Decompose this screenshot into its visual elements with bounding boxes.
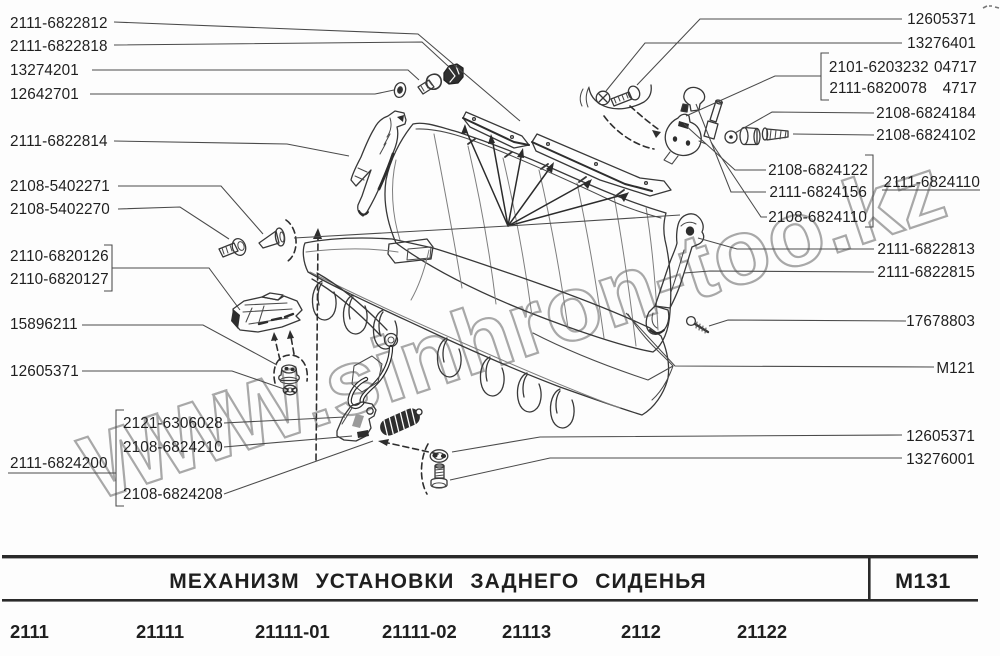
- svg-text:2111-6822818: 2111-6822818: [10, 38, 108, 55]
- svg-text:15896211: 15896211: [10, 316, 78, 333]
- svg-text:2111-6822812: 2111-6822812: [10, 15, 108, 32]
- svg-text:21113: 21113: [502, 621, 551, 642]
- svg-text:2108-6824110: 2108-6824110: [768, 209, 867, 226]
- svg-text:2110-6820127: 2110-6820127: [10, 271, 109, 288]
- svg-text:2108-6824184: 2108-6824184: [876, 105, 976, 122]
- svg-text:2111-6824200: 2111-6824200: [10, 455, 108, 472]
- svg-text:12642701: 12642701: [10, 86, 79, 103]
- svg-text:21111-01: 21111-01: [255, 621, 330, 642]
- svg-text:2121-6306028: 2121-6306028: [123, 415, 223, 432]
- svg-text:2111-6820078 4717: 2111-6820078 4717: [829, 80, 977, 97]
- svg-text:17678803: 17678803: [906, 313, 975, 330]
- svg-text:2111-6822815: 2111-6822815: [877, 264, 975, 281]
- svg-text:2112: 2112: [621, 621, 661, 642]
- svg-text:2108-5402270: 2108-5402270: [10, 201, 110, 218]
- svg-text:13276401: 13276401: [907, 35, 976, 52]
- svg-text:21111-02: 21111-02: [382, 621, 457, 642]
- svg-text:2111-6822813: 2111-6822813: [877, 241, 975, 258]
- svg-text:2108-6824210: 2108-6824210: [123, 439, 223, 456]
- svg-text:2111: 2111: [10, 621, 49, 642]
- svg-text:12605371: 12605371: [906, 428, 975, 445]
- svg-text:12605371: 12605371: [907, 11, 976, 28]
- svg-text:2108-6824122: 2108-6824122: [768, 162, 868, 179]
- svg-text:13276001: 13276001: [906, 451, 975, 468]
- svg-text:М131: М131: [895, 569, 951, 593]
- svg-text:2111-6824110: 2111-6824110: [884, 174, 980, 191]
- svg-text:2110-6820126: 2110-6820126: [10, 248, 109, 265]
- svg-text:2111-6822814: 2111-6822814: [10, 133, 108, 150]
- svg-text:21122: 21122: [737, 621, 787, 642]
- svg-text:МЕХАНИЗМ УСТАНОВКИ ЗАДНЕГО СИД: МЕХАНИЗМ УСТАНОВКИ ЗАДНЕГО СИДЕНЬЯ: [169, 570, 706, 593]
- svg-text:2108-5402271: 2108-5402271: [10, 178, 110, 195]
- svg-text:2101-6203232 04717: 2101-6203232 04717: [829, 59, 977, 76]
- svg-text:21111: 21111: [136, 621, 184, 642]
- svg-text:12605371: 12605371: [10, 363, 79, 380]
- svg-text:2108-6824102: 2108-6824102: [876, 127, 976, 144]
- svg-text:М121: М121: [936, 360, 975, 377]
- svg-text:2108-6824208: 2108-6824208: [123, 486, 223, 503]
- svg-text:13274201: 13274201: [10, 62, 79, 79]
- svg-text:2111-6824156: 2111-6824156: [769, 184, 867, 201]
